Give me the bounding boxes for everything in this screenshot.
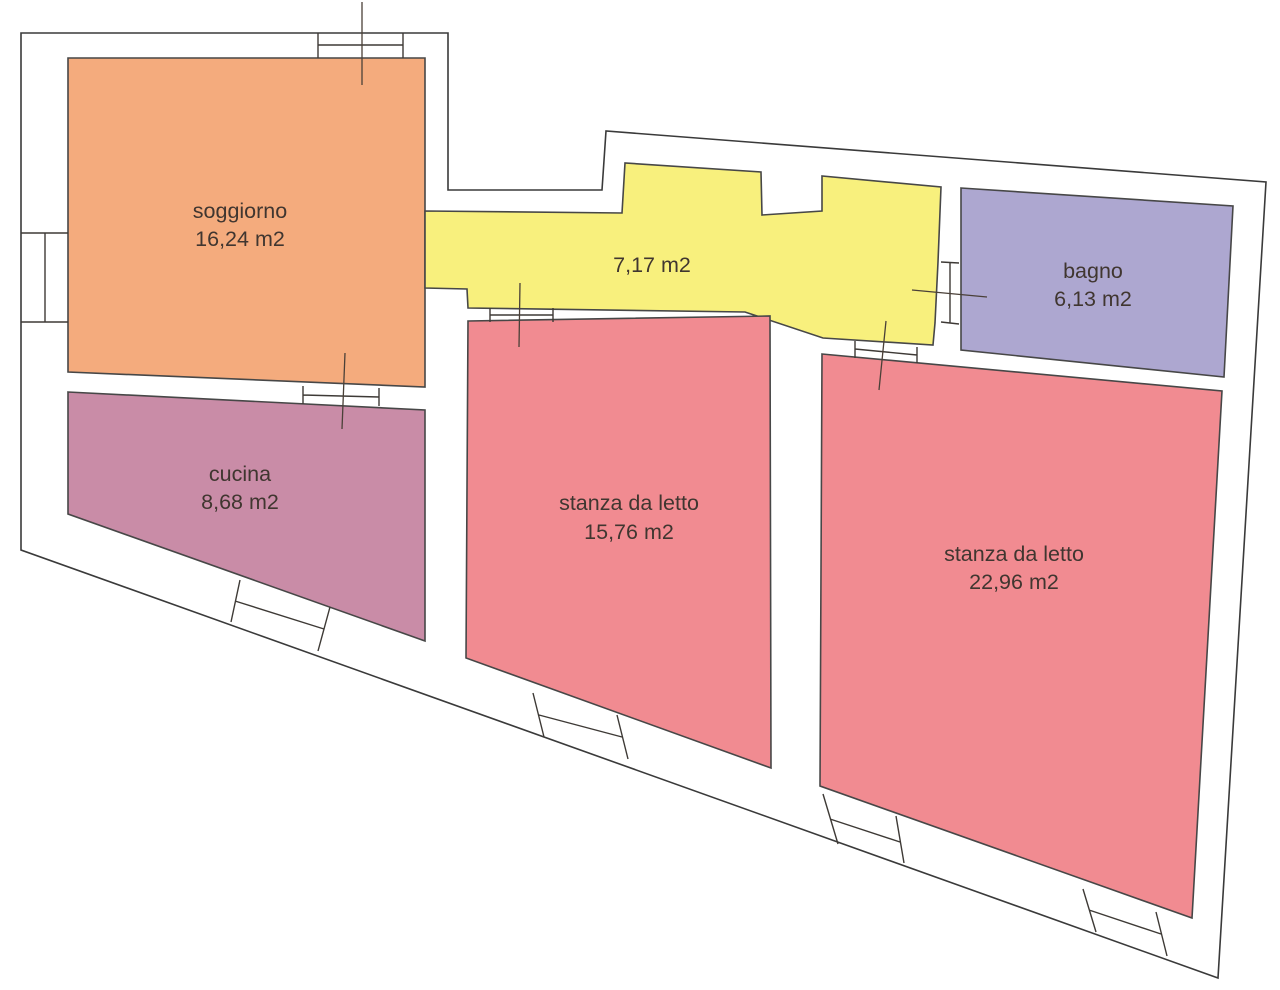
label-bedroom-1-area: 15,76 m2 [584,520,674,544]
label-corridor-area: 7,17 m2 [613,253,691,277]
label-bedroom-2-name: stanza da letto [944,542,1084,566]
label-bedroom-2-area: 22,96 m2 [969,570,1059,594]
floor-plan: soggiorno 16,24 m2 cucina 8,68 m2 stanza… [0,0,1280,990]
label-soggiorno-name: soggiorno [193,199,287,223]
label-bedroom-1-name: stanza da letto [559,491,699,515]
label-bagno-name: bagno [1063,259,1123,283]
label-bagno-area: 6,13 m2 [1054,287,1132,311]
floor-plan-canvas: soggiorno 16,24 m2 cucina 8,68 m2 stanza… [0,0,1280,990]
label-cucina-name: cucina [209,462,271,486]
label-cucina-area: 8,68 m2 [201,490,279,514]
label-soggiorno-area: 16,24 m2 [195,227,285,251]
